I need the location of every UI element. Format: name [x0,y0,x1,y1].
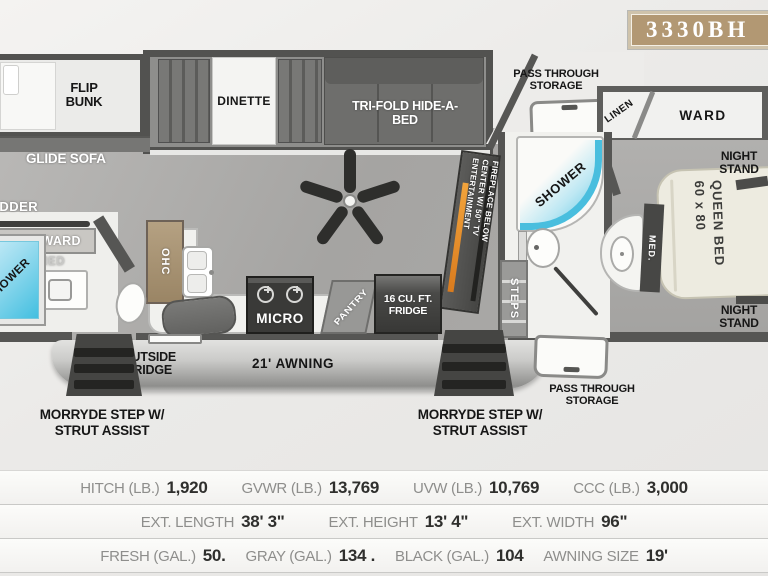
spec-label: EXT. LENGTH [141,514,234,531]
spec-row-weights: HITCH (LB.) 1,920 GVWR (LB.) 13,769 UVW … [0,471,768,505]
spec-ext-width: EXT. WIDTH 96" [512,512,627,532]
queen-bed-name: QUEEN BED [708,180,729,291]
spec-ccc: CCC (LB.) 3,000 [573,478,688,498]
spec-value: 13' 4" [425,512,468,532]
sink-bowl [187,251,207,270]
toilet-bowl [526,228,560,268]
shower-main: SHOWER [516,136,604,232]
ohc-label: OHC [159,248,171,275]
step-tread [442,362,506,371]
spec-uvw: UVW (LB.) 10,769 [413,478,539,498]
burner-cross [296,286,298,293]
upper-slideout: DINETTE TRI-FOLD HIDE-A-BED [143,50,493,154]
awning-label: 21' AWNING [252,356,334,371]
spec-value: 10,769 [489,478,539,498]
micro-label: MICRO [248,308,312,328]
hatch-handle [563,367,579,373]
hatch-handle [561,105,577,111]
steps-label: STEPS [502,262,526,336]
spec-fresh: FRESH (GAL.) 50. [100,546,225,566]
vanity-drain [620,252,624,256]
fridge: 16 CU. FT. FRIDGE [374,274,442,334]
bunk-pillow [3,65,19,95]
spec-label: HITCH (LB.) [80,480,159,497]
step-tread [74,348,135,357]
outside-fridge-door [148,334,202,344]
range-top-edge [248,278,312,283]
spec-row-tanks: FRESH (GAL.) 50. GRAY (GAL.) 134 . BLACK… [0,539,768,573]
spec-value: 96" [601,512,627,532]
kitchen-sink [182,246,214,298]
spec-table: HITCH (LB.) 1,920 GVWR (LB.) 13,769 UVW … [0,470,768,573]
spec-gray: GRAY (GAL.) 134 . [246,546,375,566]
dinette-table: DINETTE [212,57,276,145]
spec-label: UVW (LB.) [413,480,482,497]
spec-value: 38' 3" [241,512,284,532]
bunk-bed [0,62,56,130]
fan-hub [343,194,357,208]
slide-floor-edge [150,150,490,155]
ward-closet: LINEN WARD [597,86,768,144]
spec-label: AWNING SIZE [543,548,638,565]
ladder-shape [0,221,90,227]
spec-hitch: HITCH (LB.) 1,920 [80,478,207,498]
dinette-label: DINETTE [213,58,275,144]
glide-sofa-shape [0,136,150,152]
trifold-sofa: TRI-FOLD HIDE-A-BED [324,57,484,145]
sink-faucet [209,270,214,275]
spec-value: 19' [646,546,668,566]
ladder-label: LADDER [0,199,38,214]
fan-blade [344,149,356,193]
dinette-bench [158,59,210,143]
range-micro: MICRO [246,276,314,334]
sink-bowl [187,274,207,293]
spec-value: 1,920 [166,478,207,498]
ward-label: WARD [651,92,755,138]
spec-label: EXT. WIDTH [512,514,594,531]
ohc-cabinet: OHC [146,220,184,304]
flip-bunk-label: FLIP BUNK [58,70,110,120]
spec-ext-height: EXT. HEIGHT 13' 4" [329,512,469,532]
spec-label: GRAY (GAL.) [246,548,332,565]
entry-steps-right [434,330,514,396]
morryde-left-label: MORRYDE STEP W/ STRUT ASSIST [26,404,178,442]
spec-value: 13,769 [329,478,379,498]
spec-black: BLACK (GAL.) 104 [395,546,523,566]
model-number: 3330BH [631,14,768,46]
med-front-label: MED. [646,235,657,262]
spec-awning-size: AWNING SIZE 19' [543,546,667,566]
dinette-bench [278,59,322,143]
spec-label: BLACK (GAL.) [395,548,489,565]
morryde-right-label: MORRYDE STEP W/ STRUT ASSIST [402,404,558,442]
bed-fold-line [670,180,677,292]
step-tread [74,380,135,389]
step-tread [74,364,135,373]
queen-bed-label: 60 x 80 QUEEN BED [690,180,729,291]
glide-sofa-label: GLIDE SOFA [26,151,106,166]
linen-label: LINEN [603,98,636,126]
spec-value: 104 [496,546,523,566]
spec-gvwr: GVWR (LB.) 13,769 [242,478,380,498]
spec-label: FRESH (GAL.) [100,548,196,565]
bedroom-steps: STEPS [500,260,528,338]
spec-value: 50. [203,546,226,566]
storage-hatch-bottom [533,335,608,380]
burner-cross [267,286,269,293]
step-tread [442,344,506,353]
spec-value: 3,000 [647,478,688,498]
flip-bunk-slideout: FLIP BUNK [0,54,146,138]
sofa-backrest [325,58,483,84]
fridge-label: 16 CU. FT. FRIDGE [378,282,438,328]
spec-label: GVWR (LB.) [242,480,322,497]
spec-label: EXT. HEIGHT [329,514,418,531]
night-stand-bottom-label: NIGHT STAND [712,300,766,334]
night-stand-top-label: NIGHT STAND [712,146,766,180]
shower-rear: SHOWER [0,234,46,326]
step-tread [442,380,506,389]
spec-row-dimensions: EXT. LENGTH 38' 3" EXT. HEIGHT 13' 4" EX… [0,505,768,539]
floorplan-page: 3330BH DINETTE TRI-FOLD HIDE-A-BED FLIP … [0,0,768,576]
model-badge: 3330BH [627,10,768,50]
entry-steps-left [66,334,142,396]
spec-ext-length: EXT. LENGTH 38' 3" [141,512,285,532]
ohc-label-wrap: OHC [148,222,182,302]
spec-value: 134 . [339,546,375,566]
steps-label-text: STEPS [508,278,520,319]
spec-label: CCC (LB.) [573,480,639,497]
pass-through-top-label: PASS THROUGH STORAGE [500,64,612,96]
trifold-label: TRI-FOLD HIDE-A-BED [347,88,463,138]
toilet-flush [534,245,539,250]
